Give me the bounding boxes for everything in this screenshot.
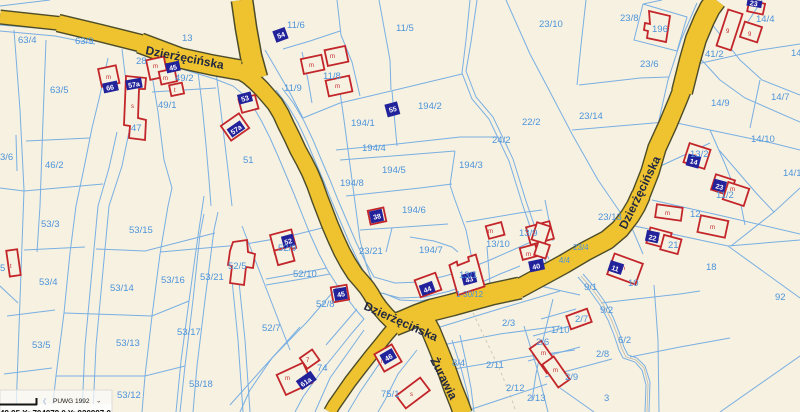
svg-text:194/4: 194/4 — [362, 143, 386, 154]
svg-text:41/2: 41/2 — [705, 49, 724, 60]
svg-text:m: m — [285, 376, 290, 382]
svg-text:53/13: 53/13 — [116, 338, 140, 349]
svg-text:23/4: 23/4 — [573, 243, 589, 252]
svg-text:53/21: 53/21 — [200, 272, 224, 283]
svg-text:24/2: 24/2 — [492, 135, 511, 146]
svg-text:14/1: 14/1 — [791, 48, 800, 59]
svg-text:194/8: 194/8 — [340, 178, 364, 189]
svg-text:53/3: 53/3 — [41, 219, 60, 230]
svg-text:53/14: 53/14 — [110, 283, 134, 294]
svg-text:m: m — [526, 252, 531, 258]
svg-text:2/12: 2/12 — [506, 383, 525, 394]
svg-text:53/16: 53/16 — [161, 275, 185, 286]
svg-text:53/12: 53/12 — [117, 390, 141, 401]
svg-text:12: 12 — [690, 209, 701, 220]
svg-text:52/7: 52/7 — [262, 323, 281, 334]
svg-text:22/2: 22/2 — [522, 117, 541, 128]
svg-text:52/9: 52/9 — [278, 243, 297, 254]
svg-text:11/5: 11/5 — [396, 23, 414, 34]
svg-text:75/1: 75/1 — [381, 389, 400, 400]
svg-text:11/6: 11/6 — [287, 20, 305, 31]
svg-text:52/8: 52/8 — [316, 299, 335, 310]
svg-text:2/7: 2/7 — [575, 314, 588, 325]
svg-text:m: m — [541, 351, 546, 357]
svg-text:❮: ❮ — [42, 397, 47, 405]
svg-text:13: 13 — [182, 33, 193, 44]
svg-text:14/4: 14/4 — [756, 14, 775, 25]
svg-text:m: m — [106, 75, 111, 81]
svg-text:14/9: 14/9 — [711, 98, 730, 109]
svg-text:63/4: 63/4 — [18, 35, 37, 46]
svg-text:194/1: 194/1 — [351, 118, 375, 129]
svg-text:13/1: 13/1 — [459, 270, 478, 281]
svg-text:s: s — [131, 104, 134, 110]
svg-text:4/4: 4/4 — [559, 256, 571, 265]
svg-text:3: 3 — [604, 393, 609, 404]
svg-text:53/15: 53/15 — [129, 225, 153, 236]
svg-text:11/2: 11/2 — [716, 190, 734, 201]
svg-text:m: m — [309, 63, 314, 69]
svg-text:13/9: 13/9 — [519, 228, 538, 239]
svg-text:6/2: 6/2 — [618, 335, 631, 346]
svg-text:194/5: 194/5 — [382, 165, 406, 176]
svg-text:28: 28 — [136, 56, 147, 67]
svg-text:m: m — [710, 225, 715, 231]
svg-text:21: 21 — [668, 240, 679, 251]
svg-text:10: 10 — [628, 278, 639, 289]
svg-text:2/3: 2/3 — [502, 318, 515, 329]
svg-text:m: m — [665, 211, 670, 217]
svg-text:23: 23 — [749, 0, 758, 8]
svg-text:11/9: 11/9 — [284, 83, 302, 94]
svg-text:194/3: 194/3 — [459, 160, 483, 171]
svg-text:14/7: 14/7 — [771, 92, 790, 103]
svg-text:23/10: 23/10 — [539, 19, 563, 30]
svg-text:m: m — [488, 229, 493, 235]
svg-text:92: 92 — [775, 292, 786, 303]
svg-text:23/21: 23/21 — [359, 246, 383, 257]
svg-text:194/2: 194/2 — [418, 101, 442, 112]
svg-text:52/10: 52/10 — [293, 269, 317, 280]
svg-text:47: 47 — [131, 123, 142, 134]
svg-text:⌄: ⌄ — [96, 398, 101, 405]
svg-text:1-30/12: 1-30/12 — [456, 290, 484, 299]
svg-text:63/5: 63/5 — [50, 85, 69, 96]
svg-text:13/10: 13/10 — [486, 239, 510, 250]
svg-text:14/10: 14/10 — [751, 134, 775, 145]
svg-text:2/8: 2/8 — [596, 349, 609, 360]
svg-text:3/6: 3/6 — [0, 152, 13, 163]
svg-text:11/8: 11/8 — [323, 71, 341, 82]
svg-text:2/9: 2/9 — [565, 372, 578, 383]
svg-text:194/7: 194/7 — [419, 245, 443, 256]
svg-text:23/14: 23/14 — [579, 111, 603, 122]
svg-text:8/4: 8/4 — [452, 358, 465, 369]
svg-text:2/6: 2/6 — [536, 337, 549, 348]
svg-text:23/8: 23/8 — [620, 13, 639, 24]
svg-text:53/4: 53/4 — [39, 277, 58, 288]
svg-text:PUWG 1992: PUWG 1992 — [53, 398, 90, 405]
svg-text:2/13: 2/13 — [527, 393, 546, 404]
svg-text:m: m — [153, 64, 158, 70]
svg-text:53/17: 53/17 — [177, 327, 201, 338]
svg-text:51: 51 — [243, 155, 254, 166]
svg-text:46/2: 46/2 — [45, 160, 64, 171]
svg-text:63/9: 63/9 — [75, 36, 94, 47]
svg-text:13/2: 13/2 — [690, 149, 709, 160]
svg-text:49/1: 49/1 — [158, 100, 177, 111]
svg-text:m: m — [553, 368, 558, 374]
svg-text:194/6: 194/6 — [402, 205, 426, 216]
svg-text:1/10: 1/10 — [551, 325, 570, 336]
svg-text:53/18: 53/18 — [189, 379, 213, 390]
svg-text:9/1: 9/1 — [584, 282, 597, 293]
svg-text:53/5: 53/5 — [32, 340, 51, 351]
svg-text:74: 74 — [317, 363, 328, 374]
svg-text:5: 5 — [0, 263, 5, 274]
svg-text:45: 45 — [337, 291, 346, 299]
svg-text:m: m — [163, 76, 168, 82]
svg-text:m: m — [335, 84, 340, 90]
svg-text:s: s — [410, 392, 413, 398]
svg-text:14/1: 14/1 — [783, 168, 800, 179]
svg-text:196: 196 — [652, 24, 668, 35]
svg-text:52/5: 52/5 — [228, 261, 247, 272]
svg-text:9/2: 9/2 — [600, 305, 613, 316]
svg-text:2/11: 2/11 — [486, 360, 504, 371]
svg-text:m: m — [330, 54, 335, 60]
svg-text:23/6: 23/6 — [640, 59, 659, 70]
svg-text:18: 18 — [706, 262, 717, 273]
svg-text:49/2: 49/2 — [175, 73, 194, 84]
